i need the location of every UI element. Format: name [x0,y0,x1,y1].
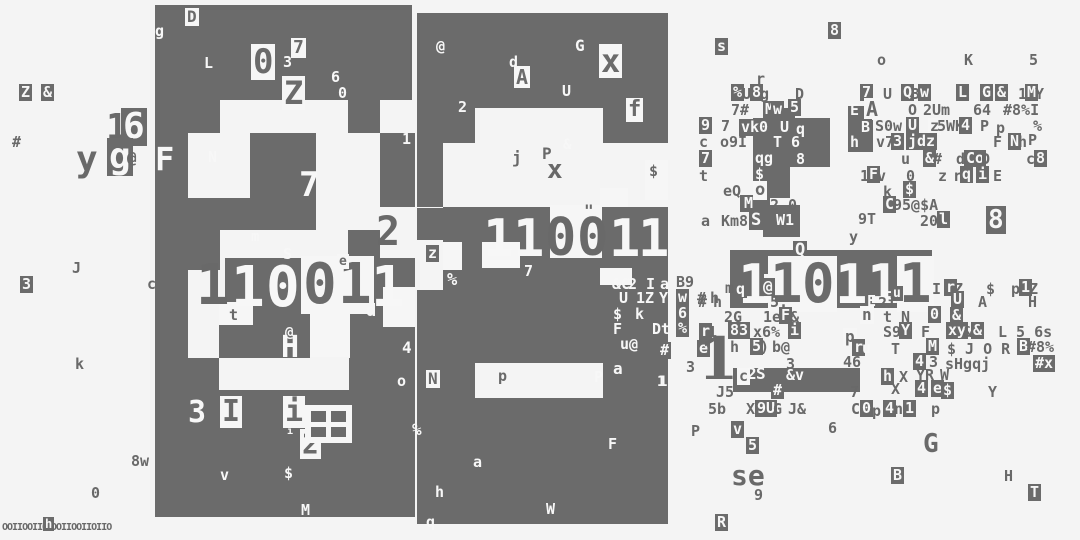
glyph: a [473,455,482,470]
gray-block [155,100,220,133]
glyph: u [901,152,910,167]
glyph: N [426,370,440,388]
window-grid-icon [305,405,352,443]
glyph: #8%I [1003,103,1039,118]
glyph: M [744,196,753,211]
glyph: 2 [376,212,400,252]
glyph: 9T [858,212,876,227]
glyph: 8w [131,454,149,469]
glyph: 3 [20,276,33,293]
glyph: 3 [283,55,292,70]
glyph: g [155,24,164,39]
glyph: t [229,308,238,323]
glyph: 0 [91,486,100,501]
glyph: x [599,44,622,78]
glyph: n [860,306,874,324]
glyph: K [964,53,973,68]
glyph: l [937,211,950,228]
glyph: w [771,101,784,118]
glyph: 5 [1029,53,1038,68]
gray-block [188,358,219,390]
glyph: $ [986,282,995,297]
glyph: Dt [652,322,670,337]
glyph: u@ [620,337,638,352]
glyph: 0 [301,256,339,314]
glyph: u [862,341,871,356]
glyph: " [584,203,594,219]
glyph: & [995,84,1008,101]
glyph: 1 [483,213,514,265]
window-pane [331,411,346,422]
glyph: L [956,84,969,101]
gray-block [443,363,475,398]
glyph: & [563,138,571,152]
glyph: 64 [973,103,991,118]
glyph: @ [127,150,137,166]
glyph: 1 [897,256,934,312]
glyph: 6 [828,421,837,436]
glyph: P [691,424,700,439]
glyph: & [41,84,54,101]
glyph: 7 [721,119,730,134]
glyph: P [1028,133,1037,148]
glyph: @ [436,39,445,54]
glyph: L [204,56,213,71]
glyph: 3 [686,360,695,375]
glyph: I [932,282,941,297]
glyph: 7# [731,103,749,118]
gray-block [155,198,316,230]
glyph: #8% [1027,340,1054,355]
glyph: d [366,303,376,320]
glyph: # [658,342,671,359]
glyph: p [498,369,507,384]
glyph: 3 [188,398,206,428]
glyph: X [899,370,908,385]
glyph: 1 [659,375,667,389]
glyph: s [715,38,728,55]
glyph: sHgqj [945,357,990,372]
glyph: 46 [843,355,861,370]
glyph: m [725,281,734,296]
glyph: B [891,467,904,484]
glyph: 1 [513,213,544,265]
glyph: 1 [835,258,868,312]
glyph: G [980,84,993,101]
glyph: 5 [788,99,801,116]
glyph: &v [786,368,804,383]
glyph: 0 [800,256,837,312]
glyph: # [933,152,942,167]
glyph: p [872,404,881,419]
glyph: i [283,396,305,428]
glyph: q [960,166,973,183]
glyph: h [850,135,859,150]
glyph: 4 [959,117,972,134]
glyph: k [635,307,644,322]
glyph: Y [899,322,912,339]
glyph: 4 [402,340,412,356]
glyph: T [891,342,900,357]
glyph: 1 [903,400,916,417]
glyph: Y [659,291,668,306]
glyph: 5 [746,437,759,454]
glyph: % [445,271,459,290]
glyph: #x [1033,355,1055,372]
glyph: 95@$A [893,198,938,213]
glyph: h [713,295,722,310]
gray-block [417,13,668,108]
glyph: 8 [986,206,1006,234]
glyph: o [753,181,767,200]
glyph: y [76,142,98,178]
glyph: j [512,150,522,166]
glyph: % [676,320,689,337]
glyph: c [147,277,156,292]
glyph: 20 [920,214,938,229]
glyph: G [773,402,782,417]
glyph: P [980,119,989,134]
gray-block [417,398,668,524]
glyph: 2Um [923,103,950,118]
glyph: $ [284,466,293,481]
glyph: A [514,66,530,88]
glyph: c [699,135,708,150]
glyph: 5b [708,402,726,417]
glyph: q [734,281,747,298]
window-pane [311,411,326,422]
glyph: ) [760,340,769,355]
glyph: Z [645,291,654,306]
glyph: # [698,295,707,310]
glyph: 7 [299,168,319,202]
glyph: W [546,502,555,517]
glyph: N [208,150,217,165]
glyph: J [72,261,81,276]
glyph: h [1018,135,1027,150]
glyph: i [287,427,293,437]
glyph: Y [988,385,997,400]
glyph: 7 [850,385,859,400]
glyph: U [883,87,892,102]
glyph: 3 [891,133,904,150]
glyph: 1 [196,258,230,314]
glyph: Km8 [721,214,748,229]
gray-block [348,100,380,133]
glyph: H [281,333,299,363]
glyph: i [788,322,801,339]
glyph: OOIIOOIIO [2,523,47,533]
glyph: R [715,514,728,531]
glyph: I [220,396,242,428]
glyph: b@ [772,340,790,355]
glyph: OOIIOOIIOIIO [51,523,111,533]
glyph: $ [941,382,954,399]
glyph: M [301,503,310,518]
glyph: T [1028,484,1041,501]
glyph: jdz [906,133,937,150]
glyph: % [412,422,422,438]
gray-block [417,208,443,240]
glyph: 2 [458,100,467,115]
glyph: J5 [716,385,734,400]
glyph: z [426,245,439,262]
glyph: E [993,169,1002,184]
glyph: m [251,230,259,244]
glyph: 1 [636,291,645,306]
glyph: H [1028,295,1037,310]
glyph: 8 [796,152,805,167]
glyph: qg [755,151,773,166]
glyph: S [756,366,766,382]
glyph: o [877,53,886,68]
glyph: f [626,98,643,122]
gray-block [417,100,443,207]
white-patch [600,188,628,207]
glyph: # [771,382,784,399]
glyph: 1 [698,330,738,388]
glyph: F [155,143,174,175]
glyph: X [746,402,755,417]
glyph: o9I [720,135,747,150]
glyph: q [426,515,435,530]
glyph: k [75,357,84,372]
glyph: Z [19,84,32,101]
glyph: 7 [524,264,533,279]
glyph: T 6 [773,135,800,150]
glyph: W1 [776,213,794,228]
glyph: p [931,402,940,417]
glyph: S [749,211,763,230]
window-pane [311,427,326,438]
glyph: G [575,38,585,54]
glyph: 1 [609,213,640,265]
glyph: & [971,322,984,339]
glyph: 8 [828,22,841,39]
glyph: 6 [331,70,340,85]
gray-block [219,325,253,358]
glyph: 1 [402,132,411,147]
glyph: Z [282,76,305,110]
glyph: U [619,291,628,306]
glyph: v [220,468,229,483]
glyph: i [976,166,989,183]
glyph: 0 [266,260,300,316]
glyph: 4 [915,380,928,397]
glyph: v [877,169,886,184]
glyph: F [608,437,617,452]
glyph: $ [649,164,658,179]
glyph: 9 [754,488,763,503]
noise-figure-canvas: Z&#16yg@3Jck8w0OOIIOOIIOhOOIIOOIIOIIODgL… [0,0,1080,540]
glyph: a [701,214,710,229]
white-patch [443,242,462,270]
glyph: 0 [338,86,347,101]
glyph: B [859,119,872,136]
glyph: 9 [699,117,712,134]
glyph: a [611,360,625,378]
glyph: U [562,84,571,99]
glyph: A [978,295,987,310]
glyph: o [397,374,406,389]
glyph: n [894,402,903,417]
glyph: e [337,254,349,269]
glyph: y [849,230,858,245]
glyph: C [851,402,860,417]
glyph: 1 [638,213,669,265]
glyph: E [850,103,859,118]
glyph: F [993,135,1002,150]
glyph: 8 [1034,150,1047,167]
glyph: X [891,382,900,397]
glyph: P [594,370,603,385]
glyph: 0 [251,44,275,80]
glyph: # [12,135,21,150]
glyph: t [699,169,708,184]
glyph: 0 [545,212,576,264]
glyph: x [547,157,563,183]
glyph: Y [1035,87,1044,102]
glyph: eQ [723,184,741,199]
glyph: 0 [928,306,941,323]
glyph: v [731,421,744,438]
glyph: G [923,431,939,457]
glyph: w [918,84,931,101]
window-pane [331,427,346,438]
glyph: h [435,485,444,500]
gray-block [155,270,188,517]
glyph: 7 [291,38,306,58]
glyph: 7 [699,150,712,167]
glyph: H [1004,469,1013,484]
glyph: D [185,8,199,26]
glyph: z [938,169,947,184]
glyph: J& [788,402,806,417]
